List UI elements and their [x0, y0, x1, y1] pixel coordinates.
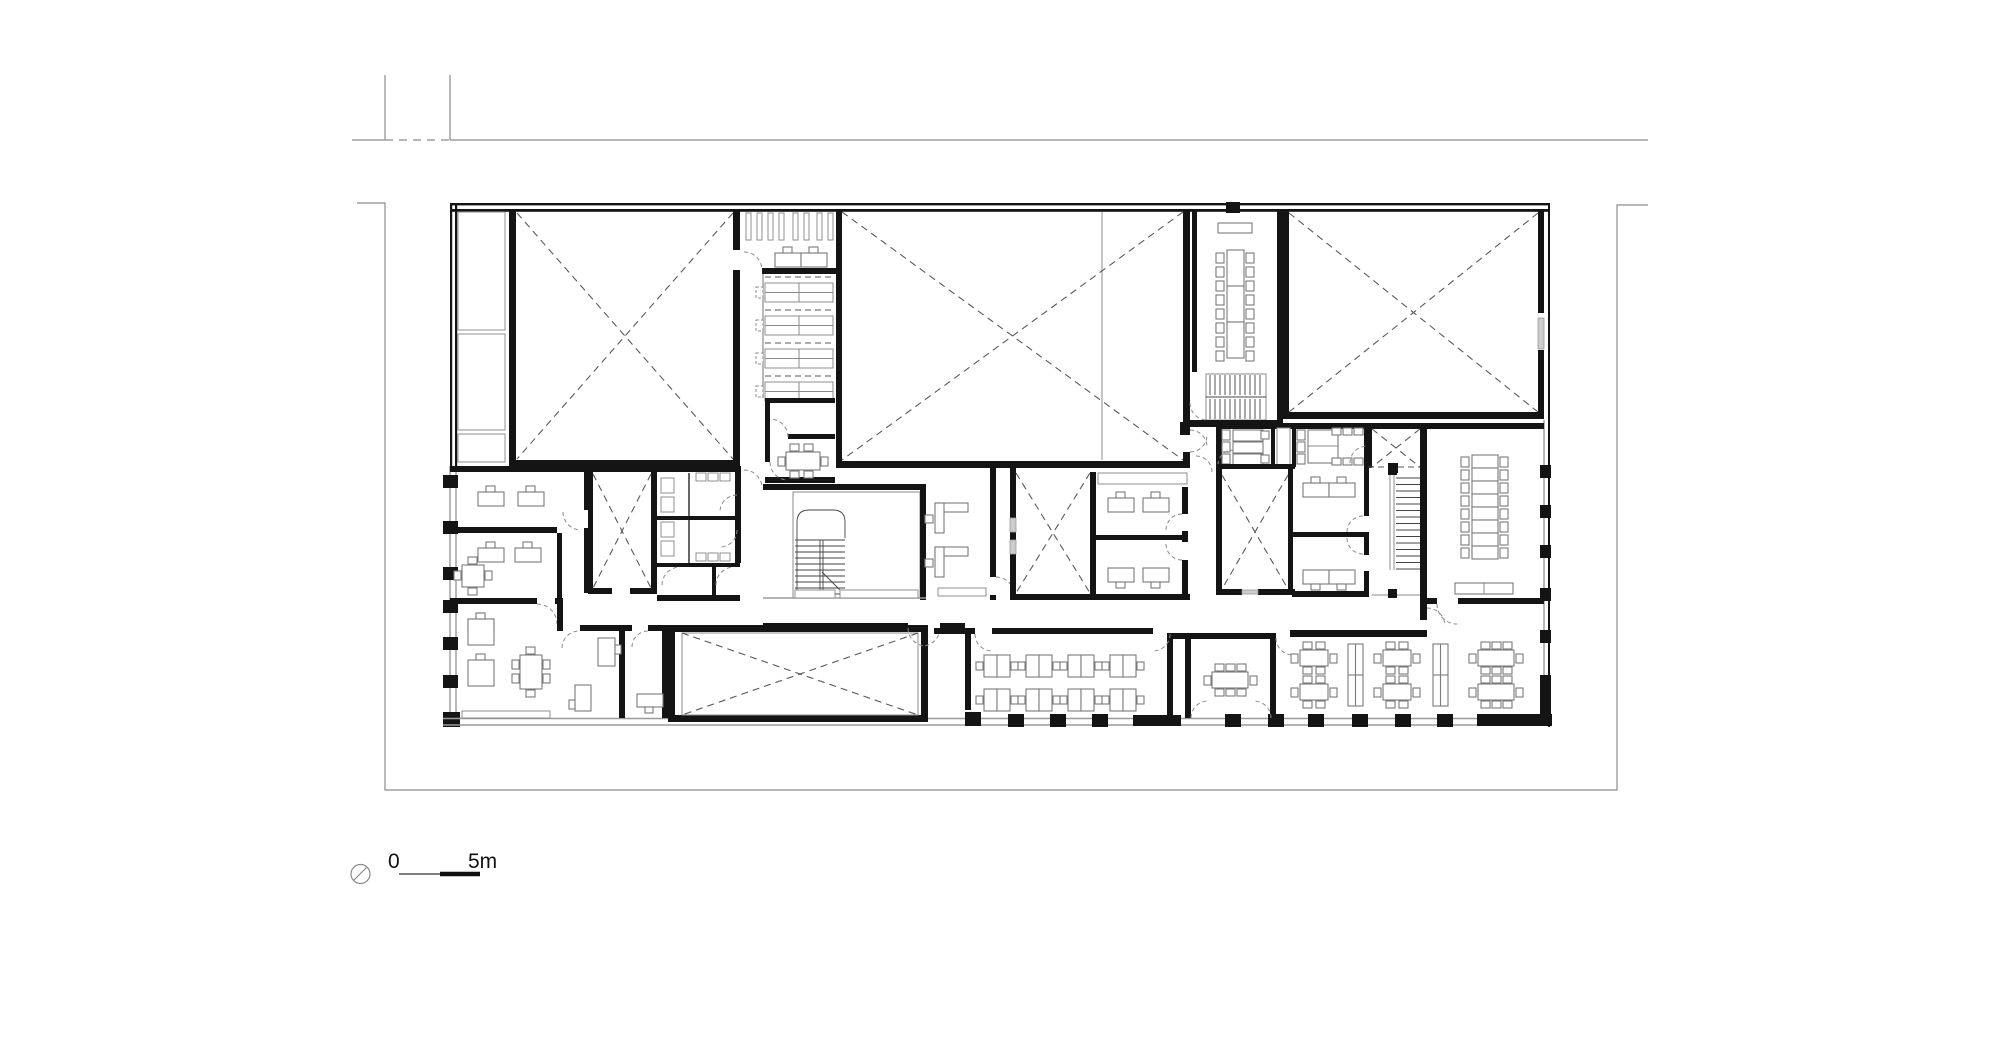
table-vertical-6 — [512, 647, 550, 697]
stair-top-right — [1190, 374, 1283, 427]
void-middle-right — [1216, 464, 1295, 595]
desk-room-center — [925, 468, 1014, 600]
central-hall — [836, 211, 1207, 468]
corridor-walls — [763, 623, 965, 628]
meeting-table-8 — [1204, 664, 1257, 696]
conference-room-right — [1420, 423, 1544, 624]
office-bottom-left: desk — [462, 598, 563, 718]
bookshelf-block-4 — [756, 376, 833, 401]
wc-block — [657, 466, 741, 601]
top-left-hall — [458, 211, 740, 467]
scale-bar: 0 5m — [351, 850, 497, 884]
rack-strips — [746, 213, 833, 240]
l-desks — [925, 503, 968, 577]
small-offices-bottom — [557, 625, 668, 718]
locker-column — [458, 212, 505, 462]
bookshelf-block-1 — [756, 277, 833, 302]
bookshelf-block-3 — [756, 343, 833, 368]
reading-area — [1290, 608, 1523, 708]
bookshelf-block-2 — [756, 310, 833, 335]
scale-max-label: 5m — [468, 850, 497, 873]
meeting-table-6 — [778, 444, 828, 478]
top-right-hall — [1283, 211, 1544, 419]
bottom-hall-void — [668, 625, 928, 722]
stair-mid-right — [1372, 423, 1427, 620]
right-corridor-doors — [1190, 430, 1212, 472]
core-stair-treads — [795, 510, 845, 595]
stair-core — [744, 470, 926, 600]
bookshelf-area — [756, 274, 833, 401]
storage-strip-room — [744, 213, 842, 274]
offices-middle-right — [1092, 473, 1188, 594]
long-table-right — [1461, 455, 1508, 559]
meeting-room-bottom — [1173, 633, 1293, 718]
passage-bottom — [908, 628, 971, 710]
small-room-and-meeting-room — [765, 398, 835, 483]
stair-treads — [1206, 375, 1266, 419]
floor-plan-drawing: desk — [0, 0, 2000, 1050]
long-table-top — [1216, 250, 1254, 361]
scale-zero-label: 0 — [388, 850, 400, 873]
void-middle-left — [588, 472, 657, 594]
floor-plan-page: desk — [0, 0, 2000, 1050]
square-table-4 — [454, 557, 492, 595]
offices-right-cd — [1292, 467, 1369, 597]
